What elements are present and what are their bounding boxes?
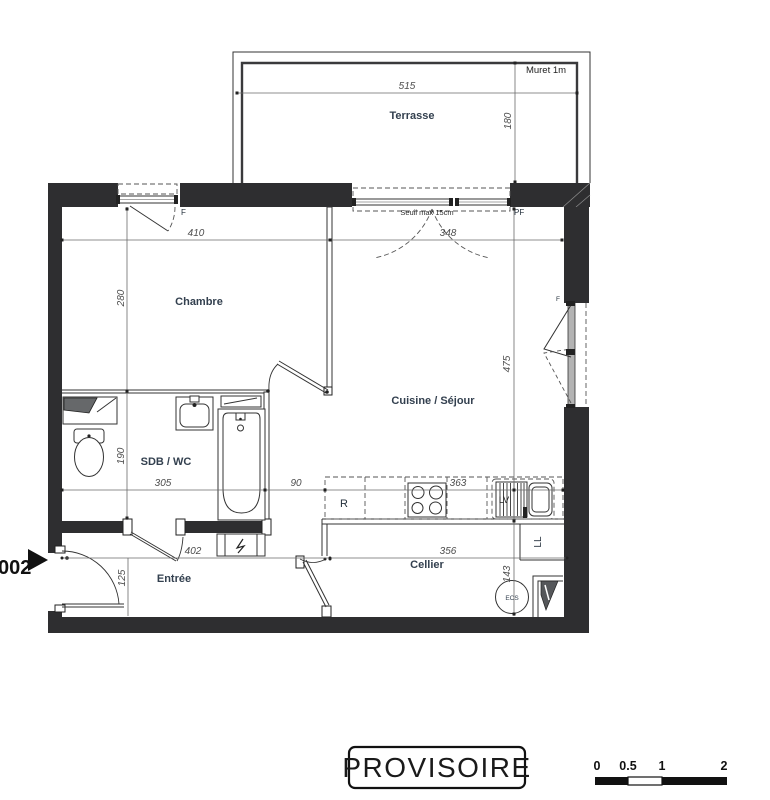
entry-door (55, 546, 124, 612)
window-f-top-label: F (181, 208, 186, 217)
scale-tick-05: 0.5 (619, 759, 636, 773)
floor-plan-page: 515 180 Terrasse Muret 1m (0, 0, 770, 800)
wall-left (48, 183, 62, 553)
wall-right-lower (564, 407, 589, 633)
fridge-label: R (340, 498, 348, 510)
window-pf-label: PF (514, 208, 524, 217)
exterior-walls (48, 183, 590, 633)
dim-chambre-width: 410 (188, 228, 205, 239)
seuil-label: Seuil max 15cm (400, 208, 453, 217)
cellier-label: Cellier (410, 559, 444, 571)
dim-cellier-width: 356 (440, 546, 457, 557)
interior-walls (62, 207, 565, 560)
muret-label: Muret 1m (526, 65, 566, 76)
dim-cuisine-depth: 475 (502, 355, 513, 372)
water-heater-label: ECS (505, 595, 519, 602)
wall-sdb-bottom-left (58, 521, 123, 533)
dim-chambre-depth: 280 (116, 289, 127, 307)
window-f-right-label: F (556, 296, 560, 303)
wall-sdb-bottom-right (185, 521, 267, 533)
dishwasher-sink-unit: LV (492, 479, 554, 519)
dim-cuisine-width: 363 (450, 478, 467, 489)
chambre-label: Chambre (175, 296, 223, 308)
toilet-bowl (75, 438, 104, 477)
washer-label: LL (533, 536, 544, 548)
dim-terrace-depth: 180 (503, 112, 514, 129)
scale-seg-2 (628, 777, 662, 785)
entry-arrow-icon (28, 549, 48, 571)
wall-chambre-cuisine (327, 207, 332, 392)
unit-marker: 002 (0, 549, 48, 579)
terrace: 515 180 Terrasse Muret 1m (233, 52, 590, 184)
dim-entree-depth: 125 (117, 569, 128, 586)
dim-hall-width: 90 (290, 478, 302, 489)
scale-seg-1 (595, 777, 628, 785)
scale-tick-2: 2 (721, 759, 728, 773)
stamp: PROVISOIRE (342, 747, 531, 788)
entree-label: Entrée (157, 573, 191, 585)
bath-shelf (221, 396, 261, 407)
window-cuisine-right: F (544, 296, 589, 408)
kitchen-fixtures: R LV (325, 477, 563, 519)
cuisine-label: Cuisine / Séjour (391, 395, 475, 407)
scale-bar: 0 0.5 1 2 (594, 759, 728, 785)
chambre-door (266, 361, 332, 395)
electrical-panel (217, 534, 265, 556)
scale-tick-1: 1 (659, 759, 666, 773)
dishwasher-label: LV (499, 495, 509, 505)
sdb-label: SDB / WC (141, 456, 192, 468)
duct-corner (533, 576, 563, 617)
dim-pf-width: 348 (440, 228, 457, 239)
dim-entree-width: 402 (185, 546, 202, 557)
cellier-door (296, 556, 332, 617)
floor-plan-drawing: 515 180 Terrasse Muret 1m (0, 0, 770, 800)
scale-seg-3 (662, 777, 727, 785)
dim-sdb-width: 305 (155, 478, 172, 489)
wall-top-right (510, 183, 563, 207)
dim-terrace-width: 515 (399, 81, 416, 92)
stamp-text: PROVISOIRE (342, 752, 531, 783)
window-pf: Seuil max 15cm PF (352, 188, 524, 258)
wall-bottom (48, 617, 589, 633)
dimension-lines: 410 348 280 190 305 90 363 402 356 125 4… (61, 207, 569, 616)
terrasse-label: Terrasse (389, 110, 434, 122)
scale-tick-0: 0 (594, 759, 601, 773)
wall-top-mid (180, 183, 352, 207)
dim-sdb-depth: 190 (116, 447, 127, 464)
unit-number: 002 (0, 557, 31, 579)
room-labels: Chambre Cuisine / Séjour SDB / WC Entrée… (141, 296, 476, 585)
cooktop (408, 483, 446, 517)
dim-cellier-depth: 143 (502, 565, 513, 582)
wall-right-upper (564, 207, 589, 303)
